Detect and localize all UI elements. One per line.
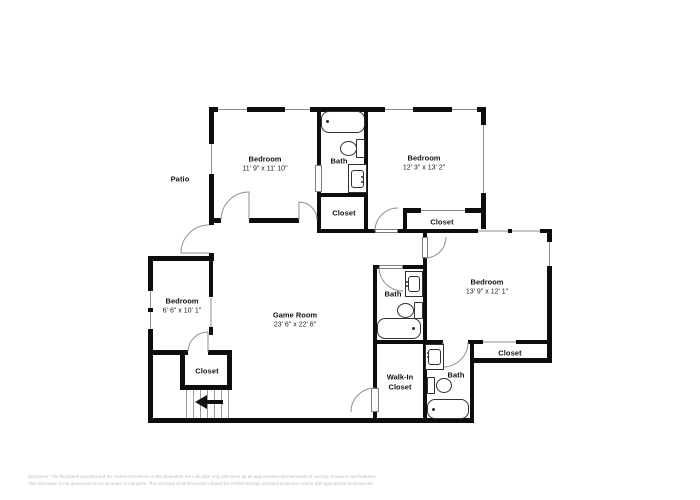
sink-tap: [406, 281, 408, 283]
window: [285, 107, 310, 112]
room-dims: 23' 6" x 22' 6": [273, 320, 317, 330]
wall: [180, 350, 185, 390]
door-leaf: [379, 265, 403, 269]
room-dims: 12' 3" x 13' 2": [403, 163, 445, 173]
room-label-walk-in-closet: Walk-In Closet: [379, 373, 421, 392]
room-label-closet-bottom-left: Closet: [195, 367, 219, 376]
room-label-bedroom-right: Bedroom 13' 9" x 12' 1": [466, 278, 508, 297]
disclaimer-line-2: This illustration is not guaranteed to b…: [28, 481, 375, 486]
toilet-tank: [356, 139, 365, 158]
toilet-tank: [414, 302, 423, 319]
disclaimer-line-1: Disclaimer: The floorplans depicted and …: [28, 474, 376, 479]
window: [481, 125, 486, 193]
closet-slider-door: [421, 208, 465, 213]
door-arc: [443, 342, 468, 367]
wall: [403, 213, 407, 233]
stairs-direction-arrow-icon: [207, 400, 223, 404]
door-leaf: [371, 388, 379, 412]
wall: [317, 192, 321, 233]
window: [148, 312, 153, 329]
wall: [148, 418, 474, 423]
room-label-bath-top: Bath: [330, 157, 347, 166]
closet-slider-door: [483, 340, 516, 344]
wall: [373, 412, 377, 418]
window: [148, 291, 153, 308]
wall: [227, 350, 232, 390]
room-label-closet-right: Closet: [498, 349, 522, 358]
door-arc: [375, 208, 398, 231]
sink-tap: [427, 352, 429, 354]
stairs-direction-arrow-icon: [195, 395, 207, 409]
wall: [209, 261, 213, 297]
door-arc: [221, 192, 249, 220]
toilet-icon: [340, 141, 357, 156]
sink-basin: [351, 170, 364, 188]
room-label-bedroom-top-left: Bedroom 11' 9" x 11' 10": [242, 155, 287, 174]
door-arc: [181, 225, 209, 253]
room-name: Game Room: [273, 311, 317, 321]
wall: [148, 261, 153, 423]
room-dims: 13' 9" x 12' 1": [466, 287, 508, 297]
sink-tap: [361, 176, 363, 178]
room-label-bedroom-top-right: Bedroom 12' 3" x 13' 2": [403, 154, 445, 173]
room-dims: 11' 9" x 11' 10": [242, 164, 287, 174]
wall: [317, 193, 368, 197]
door-leaf: [422, 237, 428, 258]
window: [218, 107, 247, 112]
wall: [423, 267, 427, 344]
window: [512, 229, 540, 233]
room-name: Bedroom: [163, 297, 201, 307]
door-arc: [425, 237, 446, 258]
window: [452, 107, 477, 112]
door-leaf: [375, 229, 398, 233]
door-arcs-overlay: [0, 0, 700, 500]
toilet-tank: [427, 377, 435, 394]
stairs: [186, 390, 230, 418]
door-arc: [188, 332, 208, 352]
room-name: Bedroom: [403, 154, 445, 164]
wall: [209, 218, 221, 223]
door-arc: [379, 267, 403, 291]
tub-faucet: [326, 120, 329, 123]
sink-basin: [428, 349, 441, 365]
room-label-closet-top: Closet: [332, 209, 356, 218]
room-label-bath-middle: Bath: [384, 290, 401, 299]
sink-tap: [361, 181, 363, 183]
room-name: Bedroom: [466, 278, 508, 288]
toilet-icon: [436, 378, 452, 393]
wall: [373, 340, 427, 344]
window: [547, 242, 552, 266]
tub-faucet: [432, 408, 435, 411]
doorway-leaf: [209, 298, 213, 327]
door-arc: [299, 202, 317, 220]
wall: [249, 218, 299, 223]
floorplan-canvas: Patio Bedroom 11' 9" x 11' 10" Bedroom 1…: [0, 0, 700, 500]
patio-label: Patio: [171, 175, 190, 184]
tub-faucet: [412, 327, 415, 330]
sink-tap: [427, 356, 429, 358]
wall: [470, 358, 552, 363]
wall: [209, 327, 213, 335]
window: [478, 229, 508, 233]
door-leaf: [315, 165, 322, 192]
sink-tap: [406, 285, 408, 287]
sink-basin: [408, 276, 420, 292]
wall: [470, 344, 474, 423]
window: [209, 144, 214, 174]
room-name: Bedroom: [242, 155, 287, 165]
room-label-bedroom-left: Bedroom 6' 6" x 10' 1": [163, 297, 201, 316]
room-label-closet-top-right: Closet: [430, 218, 454, 227]
window: [385, 107, 413, 112]
room-label-game-room: Game Room 23' 6" x 22' 6": [273, 311, 317, 330]
wall: [209, 112, 214, 144]
room-dims: 6' 6" x 10' 1": [163, 306, 201, 316]
toilet-icon: [397, 303, 414, 318]
wall: [148, 256, 213, 261]
room-label-bath-bottom-right: Bath: [447, 371, 464, 380]
